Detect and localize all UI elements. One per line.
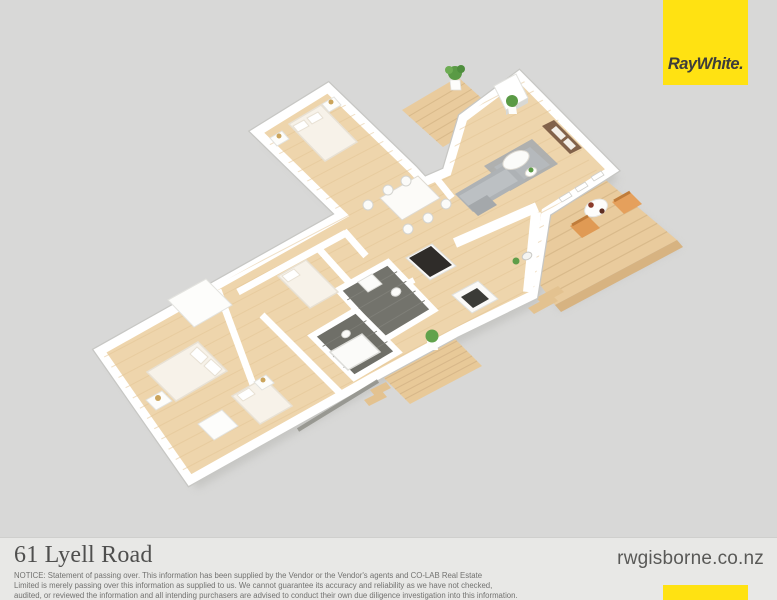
legal-notice-line: NOTICE: Statement of passing over. This … — [14, 571, 518, 581]
footer-band: 61 Lyell Road NOTICE: Statement of passi… — [0, 537, 777, 600]
page-title: 61 Lyell Road — [14, 542, 153, 569]
floorplan-render — [0, 0, 777, 537]
dining-chair-5 — [363, 200, 373, 210]
dining-chair-4 — [423, 213, 433, 223]
lamp-wing-2 — [329, 100, 334, 105]
plant-topdeck-2 — [445, 66, 453, 74]
plant-side-table — [529, 168, 534, 173]
plant-topdeck-3 — [457, 65, 465, 73]
agency-website: rwgisborne.co.nz — [617, 548, 764, 570]
raywhite-logo-text: Ray White. — [668, 55, 743, 74]
accent-bar — [663, 585, 748, 600]
dining-chair-3 — [403, 224, 413, 234]
legal-notice-line: Limited is merely passing over this info… — [14, 581, 518, 591]
plant-kitchen — [513, 258, 520, 265]
legal-notice: NOTICE: Statement of passing over. This … — [14, 571, 518, 600]
outdoor-plate-2 — [599, 208, 604, 213]
legal-notice-line: audited, or reviewed the information and… — [14, 591, 518, 600]
lamp-3 — [261, 378, 266, 383]
plant-topdeck-pot — [450, 80, 461, 90]
dining-chair-2 — [401, 176, 411, 186]
dining-chair-1 — [383, 185, 393, 195]
plant-living-pot — [508, 107, 517, 114]
plant-living — [506, 95, 518, 107]
lamp-wing-1 — [277, 134, 282, 139]
lamp-master — [155, 395, 161, 401]
outdoor-plate-1 — [588, 202, 594, 208]
screenshot-root: Ray White. 61 Lyell Road NOTICE: Stateme… — [0, 0, 777, 600]
dining-chair-6 — [441, 199, 451, 209]
raywhite-logo: Ray White. — [663, 0, 748, 85]
plant-bottomdeck — [426, 330, 439, 343]
